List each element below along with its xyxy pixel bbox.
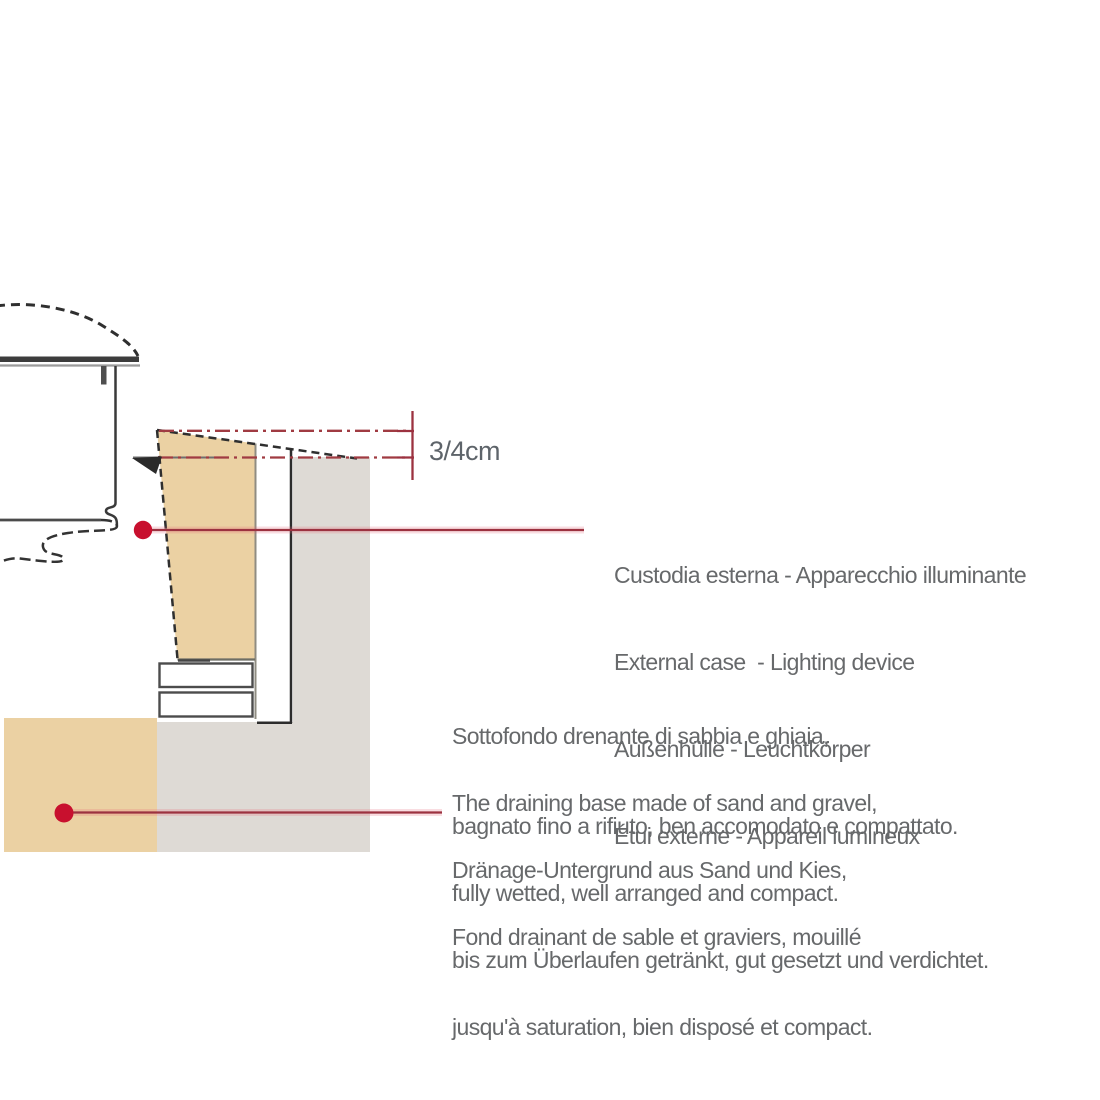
draining-base-sand-block bbox=[4, 718, 157, 852]
dimension-label: 3/4cm bbox=[429, 436, 500, 467]
broken-ground-line bbox=[0, 520, 117, 562]
leader-dot-case bbox=[134, 521, 152, 539]
case-ring-lower bbox=[160, 693, 253, 717]
label-line: jusqu'à saturation, bien disposé et comp… bbox=[452, 1012, 872, 1042]
lamp-flange-bar bbox=[0, 357, 139, 363]
case-ring-upper bbox=[160, 664, 253, 688]
lamp-body-outline bbox=[106, 366, 117, 527]
leader-dot-base bbox=[55, 804, 74, 823]
installation-diagram: 3/4cm Custodia esterna - Apparecchio ill… bbox=[0, 0, 1100, 1100]
label-line: Fond drainant de sable et graviers, moui… bbox=[452, 922, 872, 952]
lamp-dome-dashed bbox=[0, 305, 138, 356]
lamp-peg bbox=[101, 366, 107, 385]
external-case-body bbox=[157, 430, 255, 659]
label-line-it: Custodia esterna - Apparecchio illuminan… bbox=[614, 561, 1026, 590]
label-draining-base-fr: Fond drainant de sable et graviers, moui… bbox=[452, 862, 872, 1100]
datum-arrowhead bbox=[132, 457, 162, 475]
soil-side-strip bbox=[293, 457, 370, 852]
